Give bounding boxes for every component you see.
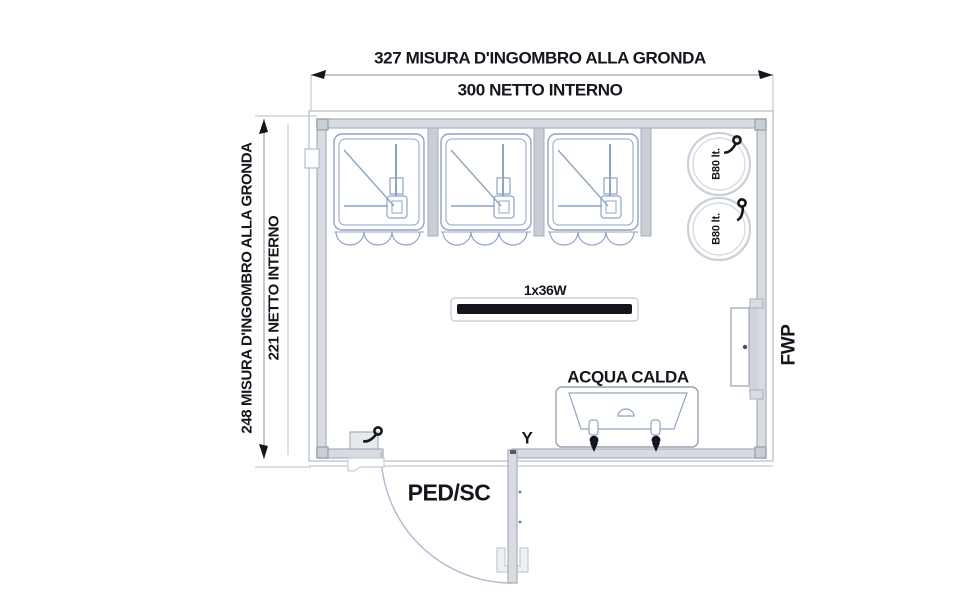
shower-curtain [336,232,420,245]
wall-bottom-right [512,449,766,458]
dimension-top-outer: 327 MISURA D'INGOMBRO ALLA GRONDA [374,50,706,67]
light-fixture [451,298,638,321]
window-label: FWP [780,324,799,365]
left-wall-junction-box [305,149,319,168]
floor-drain-symbol: Y [522,430,533,447]
door-label: PED/SC [408,482,491,505]
light-fixture-label: 1x36W [524,283,566,297]
dimension-left-inner: 221 NETTO INTERNO [267,216,282,361]
window-handle [743,345,747,349]
floor-plan-drawing: 327 MISURA D'INGOMBRO ALLA GRONDA 300 NE… [0,0,960,604]
door [381,450,528,583]
shower-stall [548,134,638,245]
boiler-top-label: B80 lt. [712,148,723,180]
door-swing-arc [381,452,512,583]
wall-right [757,119,766,458]
threshold-step [348,458,384,471]
wash-trough [556,387,698,447]
shower-stall [334,134,424,245]
wall-left [317,119,326,458]
dimension-left-outer: 248 MISURA D'INGOMBRO ALLA GRONDA [240,142,255,433]
hot-water-label: ACQUA CALDA [567,369,689,386]
dimension-top-inner: 300 NETTO INTERNO [458,82,623,99]
shower-curtain [443,232,527,245]
door-leaf [508,450,517,583]
boiler-bottom-label: B80 lt. [712,213,723,245]
wall-top [317,119,766,128]
top-dimension-line [311,70,773,79]
shower-curtain [550,232,634,245]
shower-stall [441,134,531,245]
